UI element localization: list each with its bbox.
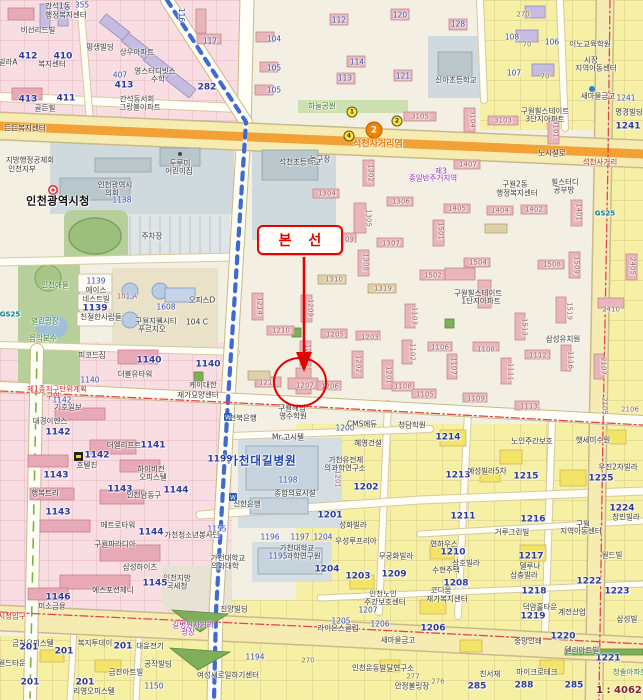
map-label: 1195	[268, 552, 287, 560]
map-label: 1140	[80, 376, 99, 384]
map-label: 1203	[361, 335, 379, 342]
station-exit-4: 4	[344, 131, 355, 142]
map-label: 1225	[588, 475, 613, 484]
map-label: 석천사거리	[583, 158, 618, 166]
map-label: 종합의료시설	[274, 489, 315, 497]
map-label: 삼성하이츠	[123, 563, 158, 571]
map-label: 1199	[207, 456, 232, 465]
map-label: 구월2동	[502, 180, 527, 188]
map-label: 3104	[469, 110, 476, 128]
map-label: 1108	[477, 347, 495, 354]
map-label: 112	[332, 16, 346, 24]
map-label: 미소금융	[38, 602, 66, 610]
map-label: 1206	[420, 625, 445, 634]
map-label: 120	[393, 11, 407, 19]
map-label: 1404	[491, 208, 509, 215]
map-label: 피코드짐	[78, 351, 106, 359]
map-label: 288	[515, 682, 534, 691]
map-label: 412	[19, 53, 38, 62]
map-label: 1214	[256, 297, 263, 315]
map-label: 1223	[604, 588, 629, 597]
map-label: 어린이집	[165, 167, 193, 175]
map-label: 1105	[416, 392, 434, 399]
map-label: 104 C	[186, 318, 208, 326]
map-label: 1103	[411, 307, 418, 325]
map-label: 지방행정공제회	[6, 156, 54, 164]
map-label: 1107	[450, 357, 457, 375]
map-label: 1201	[317, 512, 342, 521]
station-name: 석천사거리역	[353, 137, 403, 150]
map-label: 101 A	[117, 294, 137, 301]
map-label: 1508	[543, 262, 561, 269]
map-label: 새마을금고	[381, 636, 416, 644]
map-label: 1304	[318, 191, 336, 198]
map-label: 신한은행	[233, 500, 261, 508]
map-label: 3103	[494, 118, 512, 125]
map-label: 의과대학	[211, 562, 239, 570]
map-label: 진양빌딩	[220, 605, 248, 613]
map-label: 1509	[573, 256, 580, 274]
map-label: 행정복지센터	[45, 11, 86, 19]
map-label: 수학	[151, 75, 165, 83]
map-label: 창민빌라	[612, 513, 640, 521]
map-label: 상우아파트	[120, 48, 155, 56]
map-label: 1111	[507, 363, 514, 381]
map-label: 1203	[345, 573, 370, 582]
map-label: 1214	[435, 434, 460, 443]
map-label: 전북은행	[229, 414, 257, 422]
map-label: 1140	[136, 357, 161, 366]
map-label: 평생빌딩	[86, 43, 114, 51]
map-label: 270	[516, 12, 529, 19]
map-label: 이노교육학원	[569, 40, 610, 48]
map-label: 인천광역시청	[26, 196, 90, 207]
map-label: 우진2차빌라	[598, 463, 637, 471]
map-label: 1208	[304, 344, 311, 362]
map-label: 1501	[437, 222, 444, 240]
map-label: 1201	[334, 470, 341, 488]
map-label: 1407	[459, 162, 477, 169]
map-label: 1207	[358, 606, 377, 614]
map-label: 광장	[181, 628, 195, 636]
map-label: 1202	[355, 355, 362, 373]
map-label: 1241	[616, 94, 635, 102]
map-label: 공부방	[554, 186, 575, 194]
map-label: 우성루프리아	[335, 537, 376, 545]
map-label: 영수학원	[279, 412, 307, 420]
map-label: 중앙인쇄	[514, 637, 542, 645]
map-label: 에스포션제니	[92, 586, 133, 594]
scale-text: 1 : 4062	[596, 686, 642, 696]
map-label: 128	[451, 20, 465, 28]
map-label: 1206	[370, 620, 389, 628]
map-label: 인천지부	[8, 165, 36, 173]
map-label: 라이온스클럽	[317, 624, 358, 632]
map-label: 113	[338, 74, 352, 82]
map-label: 1142	[84, 452, 109, 461]
map-label: 1211	[450, 513, 475, 522]
map-label: 친절한사람들	[80, 313, 121, 321]
map-label: 월드빌	[602, 551, 623, 559]
map-label: 금잔아트빌	[109, 668, 144, 676]
map-label: 1216	[520, 516, 545, 525]
map-label: 에이스	[86, 286, 107, 294]
map-label: GS25	[595, 211, 616, 218]
map-label: 거루그린빌	[495, 528, 530, 536]
map-label: 1310	[325, 277, 343, 284]
map-label: 메트로타워	[101, 521, 136, 529]
map-label: 인천애뜰	[41, 281, 69, 289]
map-label: 1106	[431, 345, 449, 352]
map-label: 3105	[411, 114, 429, 121]
map-label: 복지투데이	[78, 639, 113, 647]
map-label: 1401	[575, 203, 582, 221]
map-label: 1102	[409, 343, 416, 361]
map-label: 골든힐	[35, 104, 56, 112]
map-label: 재가요양센터	[177, 391, 218, 399]
map-label: 201	[114, 643, 133, 652]
map-label: 델루나	[520, 562, 541, 570]
station-exit-1: 1	[347, 107, 358, 118]
map-label: 비선리드빌	[21, 26, 56, 34]
map-label: 1210	[440, 549, 465, 558]
map-label: 1108	[394, 384, 412, 391]
map-label: 삼충빌라	[510, 571, 538, 579]
map-label: 1150	[144, 682, 163, 690]
map-label: 햇세미수원	[576, 436, 611, 444]
map-label: 1402	[525, 207, 543, 214]
map-label: 1217	[518, 553, 543, 562]
map-label: 106	[545, 38, 559, 46]
map-label: 1222	[576, 578, 601, 587]
map-label: 재가복지센터	[426, 595, 467, 603]
map-label: 음악분수	[29, 334, 57, 342]
map-label: 1608	[156, 303, 175, 311]
map-label: 1205	[326, 332, 344, 339]
map-label: 1139	[86, 277, 105, 285]
map-label: 리영오피스텔	[73, 687, 114, 695]
map-label: 지역아동센터	[575, 64, 616, 72]
map-label: 공작빌딩	[144, 660, 172, 668]
map-label: 오피스텔	[139, 473, 167, 481]
map-label: 행정복지센터	[496, 189, 537, 197]
map-label: 케이대한	[189, 381, 217, 389]
map-label: 1204	[313, 533, 332, 541]
map-label: CMS에듀	[347, 420, 377, 428]
map-label: 1207	[296, 383, 314, 390]
map-label: 델리아트빌	[565, 646, 600, 654]
map-label: 1113	[520, 404, 538, 411]
map-label: 1144	[163, 487, 188, 496]
map-label: 시청입구	[0, 612, 26, 620]
map-label: 1196	[260, 533, 279, 541]
map-label: 푸르지오	[138, 325, 166, 333]
map-label: 월드타운	[0, 659, 26, 667]
map-label: 인천남동구	[127, 491, 162, 499]
station-exit-2: 2	[392, 116, 403, 127]
map-label: 1405	[448, 206, 466, 213]
map-label: 1112	[529, 353, 547, 360]
map-label: 411	[57, 95, 76, 104]
map-label: 107	[507, 69, 521, 77]
map-label: 1219	[520, 613, 545, 622]
map-label: 117	[203, 37, 217, 45]
map-label: 국세청	[167, 582, 188, 590]
map-label: 종일반주거지역	[409, 174, 457, 182]
map-label: 413	[115, 82, 134, 91]
map-label: 지역아동센터	[560, 527, 601, 535]
map-label: 계전산업	[558, 608, 586, 616]
map-label: 276	[431, 679, 444, 686]
map-label: 대경이엔스	[33, 417, 68, 425]
map-labels-layer: 355간석1동행정복지센터비선리드빌412410복지센터빌라A413411골든힐…	[0, 0, 643, 700]
map-label: 1209	[381, 571, 406, 580]
map-label: 2405	[629, 257, 636, 275]
map-label: 1143	[45, 509, 70, 518]
map-label: 1519	[566, 302, 573, 320]
map-label: 의과학연구소	[324, 464, 365, 472]
map-label: 1143	[43, 472, 68, 481]
map-label: 1194	[245, 653, 264, 661]
map-label: 예성빌라5차	[467, 467, 506, 475]
map-label: 새마을금고	[581, 92, 616, 100]
map-label: 가천청소년봉사단	[164, 531, 219, 539]
map-label: 노시설로	[538, 149, 566, 157]
map-label: 1504	[469, 260, 487, 267]
map-label: 2410	[602, 307, 620, 314]
map-label: 1206	[321, 384, 339, 391]
map-label: 친서재	[480, 670, 501, 678]
map-label: 더블유타워	[118, 370, 153, 378]
map-label: 1109	[467, 396, 485, 403]
map-label: 1319	[374, 286, 392, 293]
map-label: 1204	[314, 566, 339, 575]
map-label: 빌라A	[0, 58, 17, 66]
map-label: 201	[21, 679, 40, 688]
map-label: 108	[505, 33, 519, 41]
map-label: 코디움	[431, 586, 452, 594]
map-label: 1502	[424, 273, 442, 280]
map-label: 청담학원	[398, 421, 426, 429]
map-label: 105	[267, 86, 281, 94]
map-label: 혜영건설	[354, 439, 382, 447]
map-label: 116	[177, 8, 185, 22]
map-label: 105	[267, 64, 281, 72]
map-label: 복지센터	[38, 60, 66, 68]
map-label: 간석1동	[45, 2, 70, 10]
map-label: 201	[20, 644, 39, 653]
map-label: 하늘공원	[308, 102, 336, 110]
map-label: 청솔아파트	[613, 668, 643, 676]
map-label: 1305	[365, 209, 372, 227]
map-label: 2105	[601, 397, 608, 415]
map-label: 1145	[142, 580, 167, 589]
map-label: 오피스D	[189, 296, 215, 304]
map-label: 성화빌라	[339, 521, 367, 529]
map-label: 1306	[392, 199, 410, 206]
map-label: 명경빌딩	[615, 108, 643, 116]
map-label: 가천대길병원	[227, 455, 296, 467]
map-label: 덕암홀타운	[523, 603, 558, 611]
map-label: 355	[75, 1, 89, 9]
map-label: Mr.고시텔	[272, 433, 304, 441]
map-label: 마이크로테크	[516, 668, 557, 676]
map-label: 1221	[595, 655, 620, 664]
map-label: 그랑블아파트	[119, 103, 160, 111]
map-label: 삼성유치원	[546, 335, 581, 343]
map-label: 277	[406, 674, 419, 681]
map-label: 1138	[112, 196, 131, 204]
map-label: 수현주택	[432, 566, 460, 574]
map-label: 1210	[272, 328, 290, 335]
map-label: 70	[523, 42, 532, 49]
map-label: 1141	[140, 442, 165, 451]
map-label: 인천운동발달연구소	[352, 664, 414, 672]
map-label: GS25	[0, 312, 20, 319]
map-label: 3101	[552, 120, 559, 138]
map-label: 285	[565, 682, 584, 691]
map-label: 1201	[385, 366, 392, 384]
map-label: 104	[267, 35, 281, 43]
map-label: 안정볼링장	[395, 682, 430, 690]
map-label: 285	[468, 683, 487, 692]
map-label: 1209	[307, 299, 314, 317]
map-label: 1241	[615, 123, 640, 132]
map-label: 1302	[367, 164, 374, 182]
map-label: 114	[350, 58, 364, 66]
map-label: 1142	[45, 429, 70, 438]
map-label: 행복트리	[31, 489, 59, 497]
map-label: 열린광장	[31, 317, 59, 325]
map-label: 2107	[600, 357, 607, 375]
map-label: 1220	[550, 633, 575, 642]
map-label: 1211	[259, 380, 277, 387]
map-label: 1218	[521, 588, 546, 597]
map-label: 노인주간보호	[511, 437, 552, 445]
map-label: 1116	[567, 351, 574, 369]
annotation-callout: 본 선	[257, 225, 343, 255]
map-label: 1144	[138, 529, 163, 538]
map-label: 대윤전기	[136, 642, 164, 650]
map-label: 호텔진	[77, 461, 98, 469]
map-label: 1308	[362, 253, 369, 271]
map-label: 270	[301, 658, 314, 665]
map-label: 2106	[621, 407, 639, 414]
map-label: 무궁화빌라	[379, 552, 414, 560]
map-label: 282	[198, 84, 217, 93]
map-label: 더엘리프트	[107, 441, 142, 449]
map-label: 1140	[195, 361, 220, 370]
map-label: 1513	[521, 318, 528, 336]
map-label: 1198	[278, 476, 297, 484]
map-label: 1307	[382, 241, 400, 248]
map-label: 121	[396, 72, 410, 80]
map-label: 407	[113, 71, 127, 79]
map-label: 1202	[353, 484, 378, 493]
map-label: 든든복지센터	[4, 124, 45, 132]
map-label: 1197	[290, 533, 309, 541]
map-label: 네스트빌	[82, 295, 110, 303]
map-label: 기호일보	[54, 403, 82, 411]
map-label: 70	[541, 74, 550, 81]
map-label: 농구장	[310, 155, 331, 163]
map-label: 201	[55, 648, 74, 657]
map-label: 주차장	[142, 232, 163, 240]
map-label: 여성새로일하기센터	[197, 671, 259, 679]
map-label: 삼성빌	[617, 615, 638, 623]
map-label: 1215	[513, 473, 538, 482]
map-label: 연하우스	[430, 540, 458, 548]
map-label: 구월파라디아	[94, 540, 135, 548]
map-label: 1단지아파트	[461, 297, 500, 305]
map-label: 신아초등학교	[435, 76, 476, 84]
map-canvas[interactable]: W W 355간석1동행정복지센터비선리드빌412410복지센터빌라A41341…	[0, 0, 643, 700]
